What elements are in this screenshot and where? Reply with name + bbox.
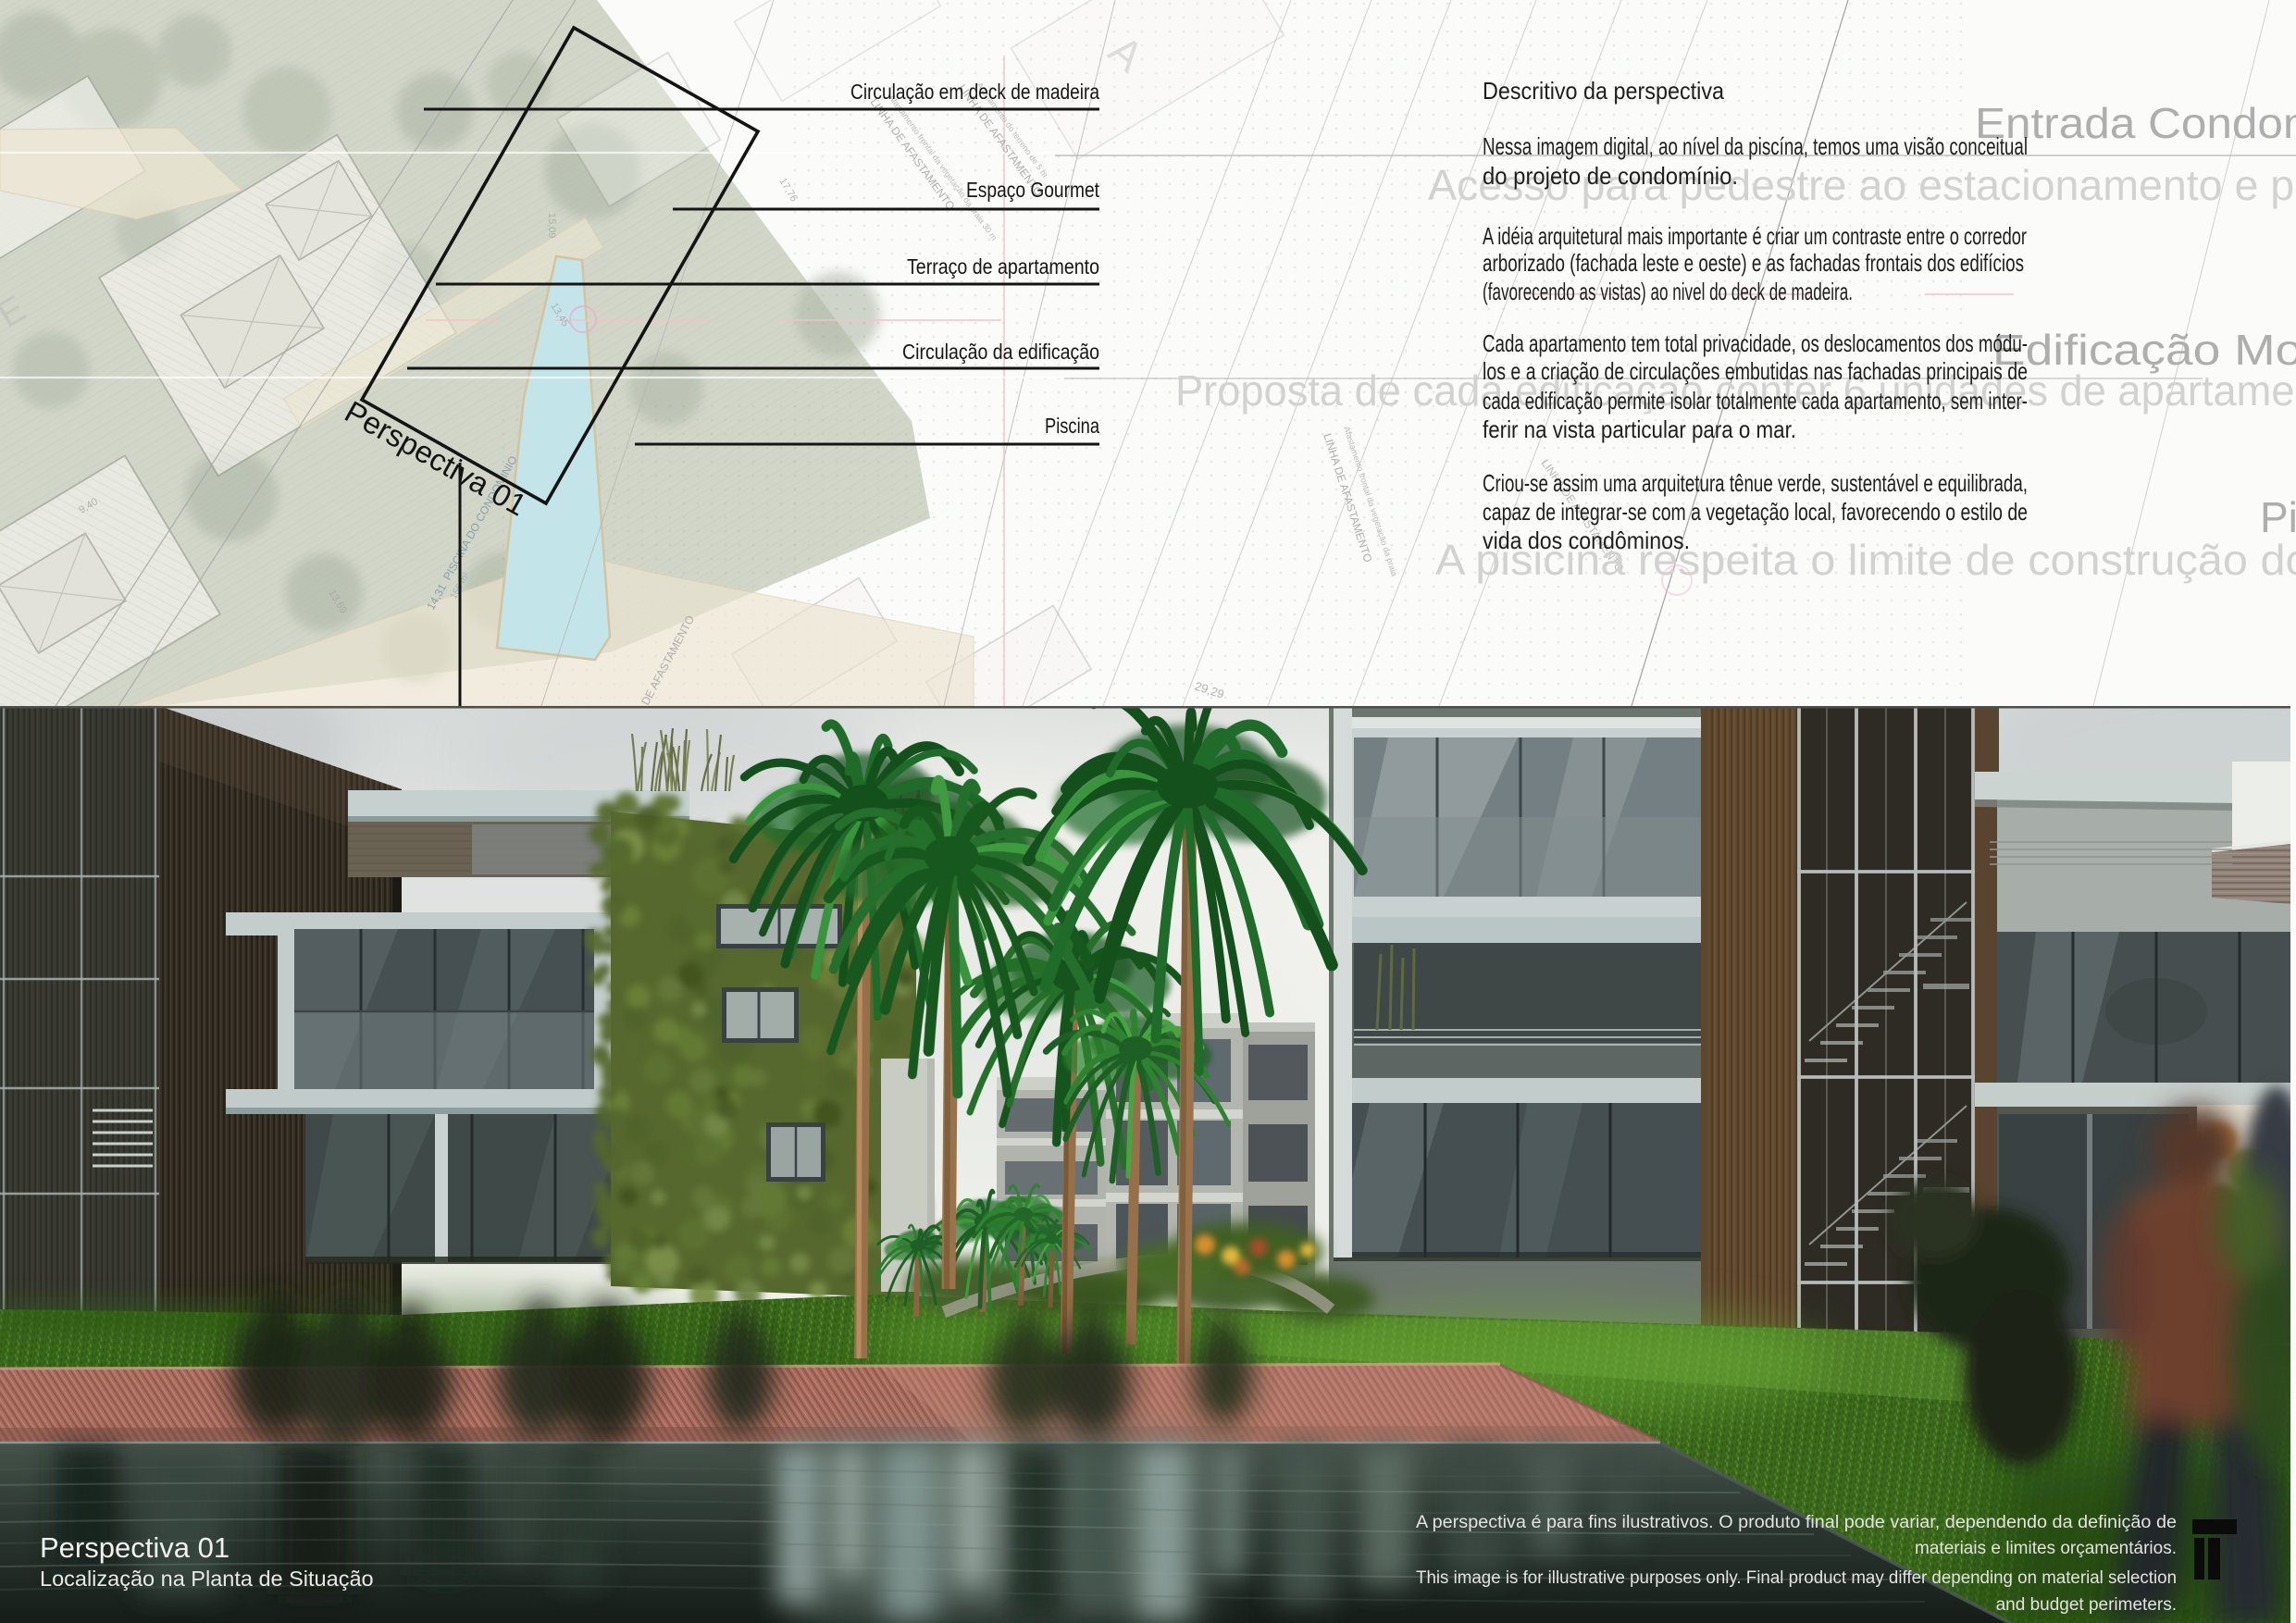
svg-text:Cada apartamento tem total pri: Cada apartamento tem total privacidade, … xyxy=(1483,329,2028,357)
svg-text:materiais e limites orçamentár: materiais e limites orçamentários. xyxy=(1915,1539,2177,1558)
svg-text:cada edificação permite isolar: cada edificação permite isolar totalment… xyxy=(1483,387,2028,415)
svg-text:A perspectiva é para fins ilus: A perspectiva é para fins ilustrativos. … xyxy=(1416,1513,2177,1532)
svg-text:15,09: 15,09 xyxy=(546,213,557,239)
svg-text:Perspectiva 01: Perspectiva 01 xyxy=(40,1531,230,1564)
svg-text:A idéia arquitetural mais impo: A idéia arquitetural mais importante é c… xyxy=(1483,222,2027,250)
svg-text:Espaço Gourmet: Espaço Gourmet xyxy=(966,178,1099,202)
svg-text:Circulação em deck de madeira: Circulação em deck de madeira xyxy=(850,80,1099,104)
svg-text:and budget perimeters.: and budget perimeters. xyxy=(1996,1595,2177,1615)
svg-text:Piscina: Piscina xyxy=(2260,493,2296,541)
svg-text:Descritivo da perspectiva: Descritivo da perspectiva xyxy=(1483,77,1724,105)
svg-text:vida dos condôminos.: vida dos condôminos. xyxy=(1483,527,1690,554)
svg-text:arborizado (fachada leste e oe: arborizado (fachada leste e oeste) e as … xyxy=(1483,249,2024,277)
svg-text:Terraço de apartamento: Terraço de apartamento xyxy=(907,254,1099,279)
svg-text:Nessa imagem digital, ao nível: Nessa imagem digital, ao nível da piscín… xyxy=(1483,132,2028,160)
svg-text:Circulação da edificação: Circulação da edificação xyxy=(902,340,1099,364)
svg-text:Localização na Planta de Situa: Localização na Planta de Situação xyxy=(40,1567,374,1591)
svg-text:ferir na vista particular para: ferir na vista particular para o mar. xyxy=(1483,415,1796,443)
svg-text:do projeto de condomínio.: do projeto de condomínio. xyxy=(1483,162,1738,190)
svg-text:los e a criação de circulações: los e a criação de circulações embutidas… xyxy=(1483,357,2028,385)
svg-text:capaz de integrar-se com a veg: capaz de integrar-se com a vegetação loc… xyxy=(1483,498,2028,526)
svg-text:Piscina: Piscina xyxy=(1045,414,1099,438)
svg-text:(favorecendo as vistas) ao niv: (favorecendo as vistas) ao nivel do deck… xyxy=(1483,278,1853,305)
svg-text:Criou-se assim uma arquitetura: Criou-se assim uma arquitetura tênue ver… xyxy=(1483,469,2028,497)
svg-text:This image is for illustrative: This image is for illustrative purposes … xyxy=(1416,1568,2177,1588)
